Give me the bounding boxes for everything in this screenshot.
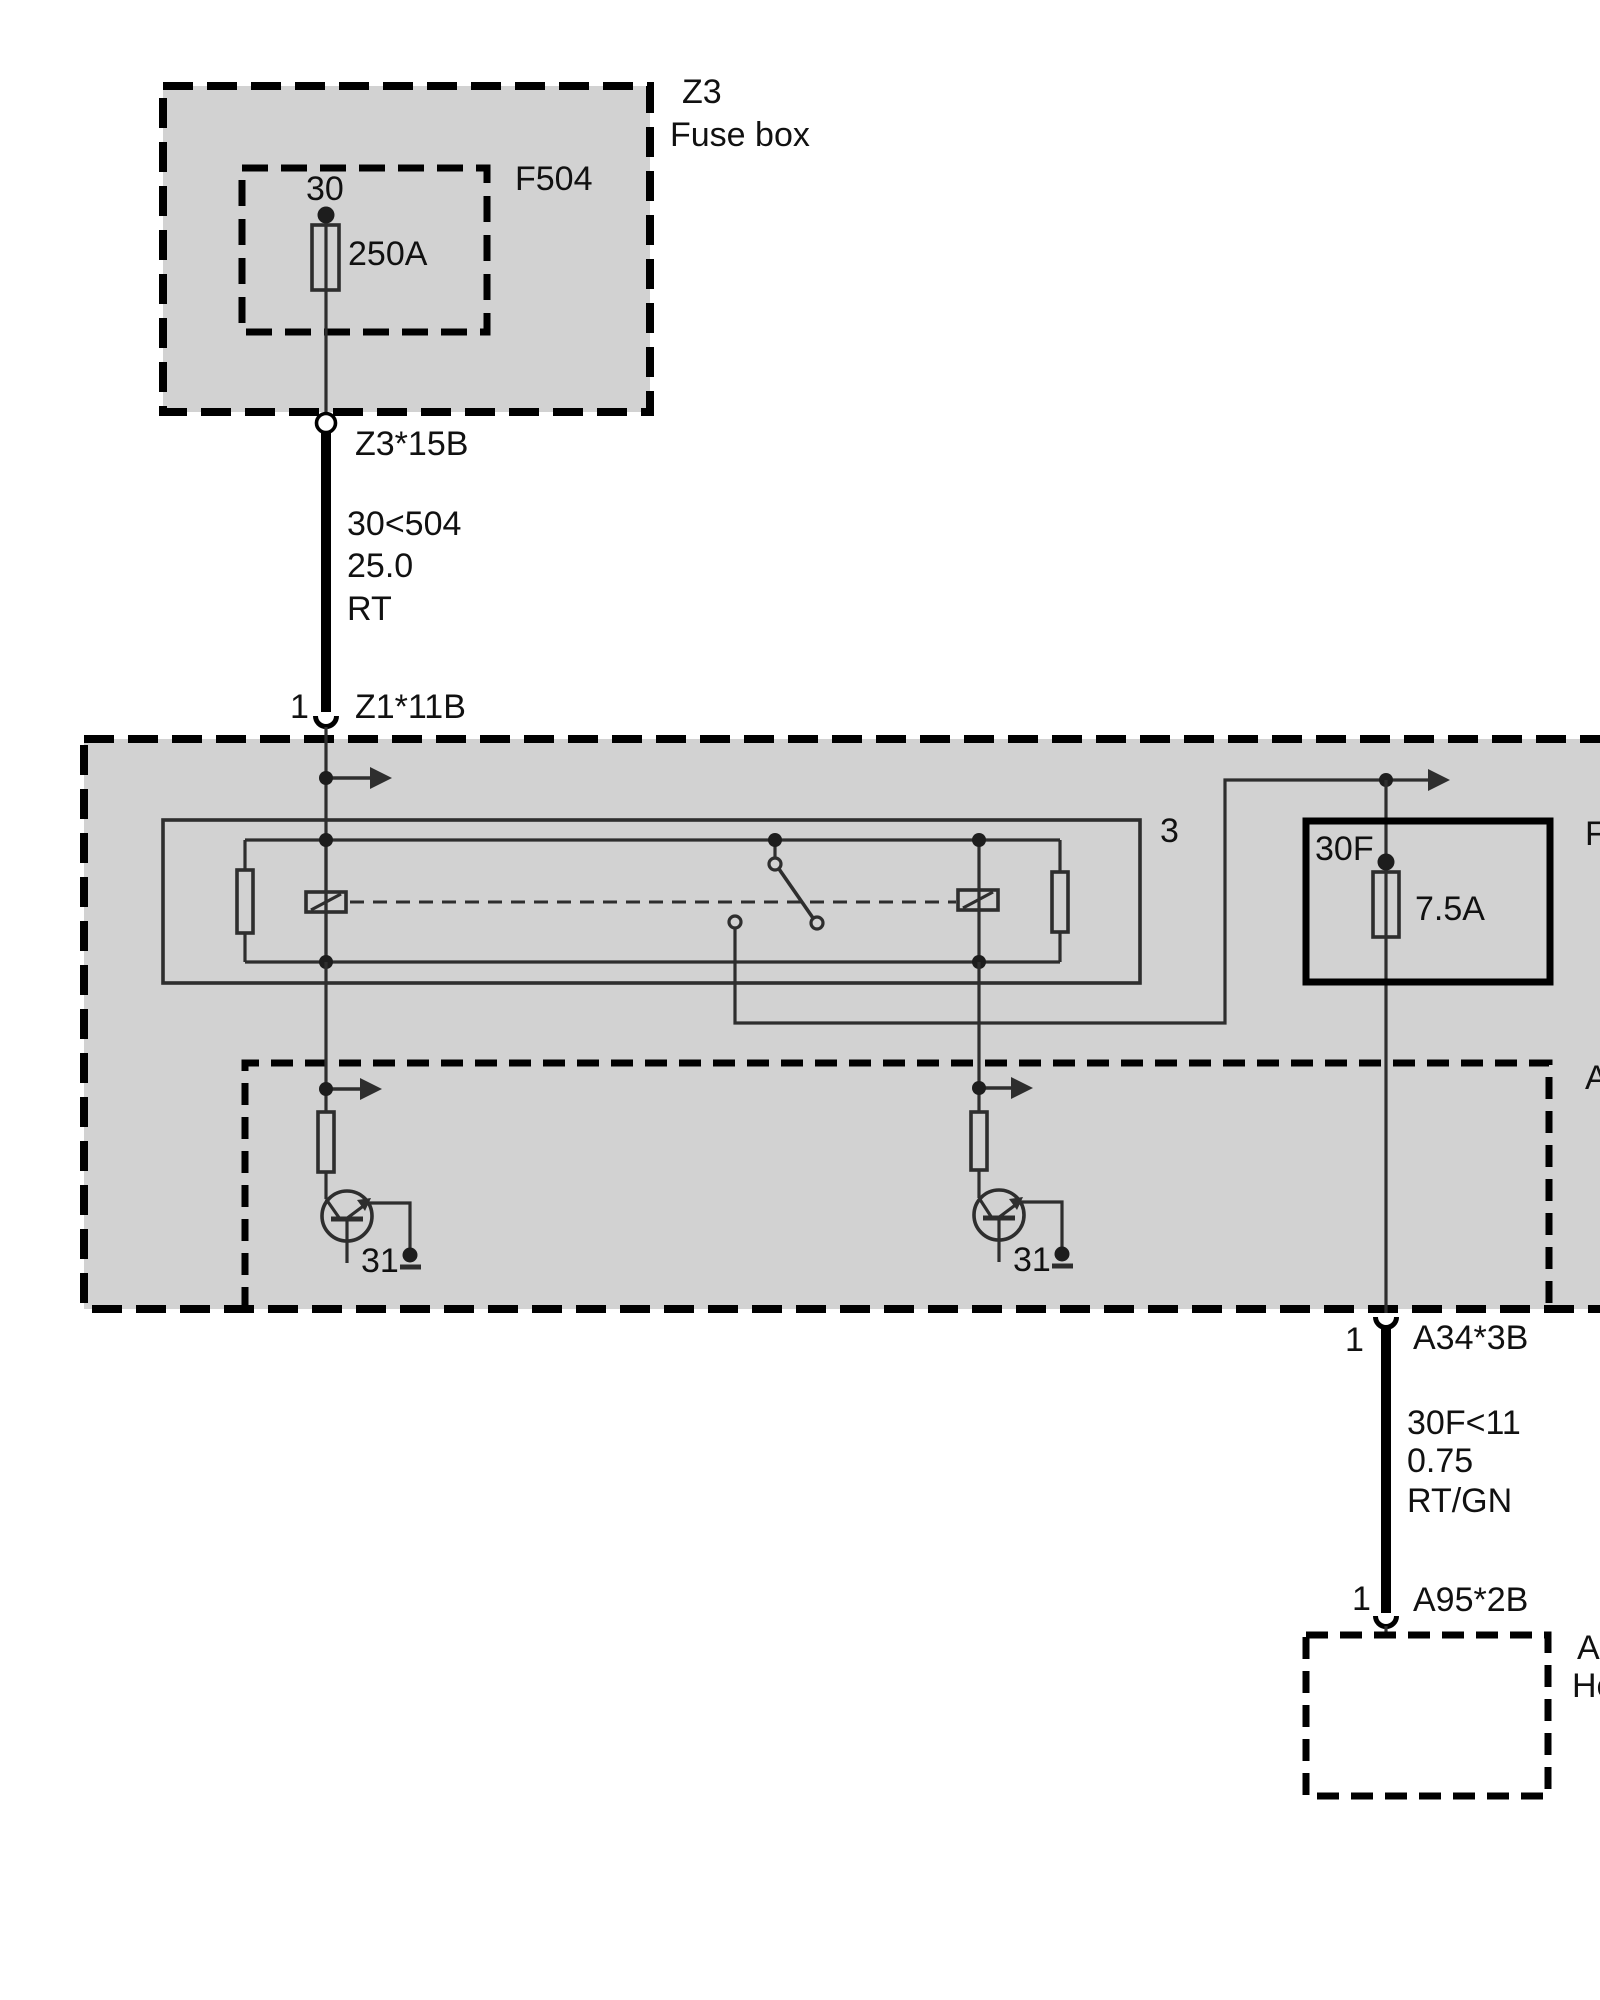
z1-11b-label: Z1*11B [355, 688, 466, 726]
control-unit-partial-label: A [1585, 1059, 1600, 1097]
output-wire-color: RT/GN [1407, 1482, 1512, 1520]
z3-15b-ring-connector [317, 414, 336, 433]
a34-3b-connector-cup [1376, 1317, 1397, 1328]
junction-node [319, 833, 333, 847]
terminal-30f-label: 30F [1315, 830, 1374, 868]
junction-node [319, 1082, 333, 1096]
feed-wire-color: RT [347, 590, 392, 628]
a34-3b-pin: 1 [1345, 1321, 1364, 1359]
terminal-30f-node [1378, 854, 1395, 871]
left-ground-label: 31 [361, 1242, 399, 1280]
left-ground-node [403, 1248, 418, 1263]
fuse-7-5a-rating: 7.5A [1415, 890, 1485, 928]
a95-2b-pin: 1 [1352, 1580, 1371, 1618]
bottom-box-partial-id: A [1577, 1629, 1600, 1667]
z1-11b-connector-cup [316, 716, 337, 727]
terminal-30-node [318, 207, 335, 224]
z3-fuse-box: Z3 Fuse box F504 30 250A [163, 73, 810, 413]
terminal-30-label: 30 [306, 170, 344, 208]
fuse-box-partial-label: F [1585, 815, 1600, 853]
a95-2b-connector-cup [1376, 1616, 1397, 1627]
wiring-diagram-page: Z3 Fuse box F504 30 250A Z3*15B 30<504 2… [0, 0, 1600, 2000]
junction-node [972, 833, 986, 847]
heated-window-box-outline [1306, 1635, 1548, 1796]
heated-window-box: A He [1306, 1629, 1600, 1796]
z3-15b-label: Z3*15B [355, 425, 468, 463]
output-wire-circuit: 30F<11 [1407, 1404, 1521, 1442]
junction-node [972, 1081, 986, 1095]
right-ground-node [1055, 1247, 1070, 1262]
feed-wire-circuit: 30<504 [347, 505, 461, 543]
relay-box-label: 3 [1160, 812, 1179, 850]
fuse-250a-rating: 250A [348, 235, 428, 273]
right-ground-label: 31 [1013, 1241, 1051, 1279]
bottom-box-partial-name: He [1572, 1667, 1600, 1705]
junction-node [768, 833, 782, 847]
a34-3b-label: A34*3B [1413, 1319, 1528, 1357]
z1-11b-pin: 1 [290, 688, 309, 726]
a95-2b-label: A95*2B [1413, 1581, 1528, 1619]
z3-box-id: Z3 [682, 73, 722, 111]
wiring-diagram: Z3 Fuse box F504 30 250A Z3*15B 30<504 2… [0, 0, 1600, 2000]
output-wire-cross-section: 0.75 [1407, 1442, 1473, 1480]
entry-junction-node [319, 771, 333, 785]
z3-box-name: Fuse box [670, 116, 810, 154]
feed-wire-cross-section: 25.0 [347, 547, 413, 585]
feed-wire: Z3*15B 30<504 25.0 RT 1 Z1*11B [290, 414, 468, 727]
output-wire-section: 1 A34*3B 30F<11 0.75 RT/GN 1 A95*2B [1345, 1317, 1528, 1636]
f504-fuse-id: F504 [515, 160, 593, 198]
